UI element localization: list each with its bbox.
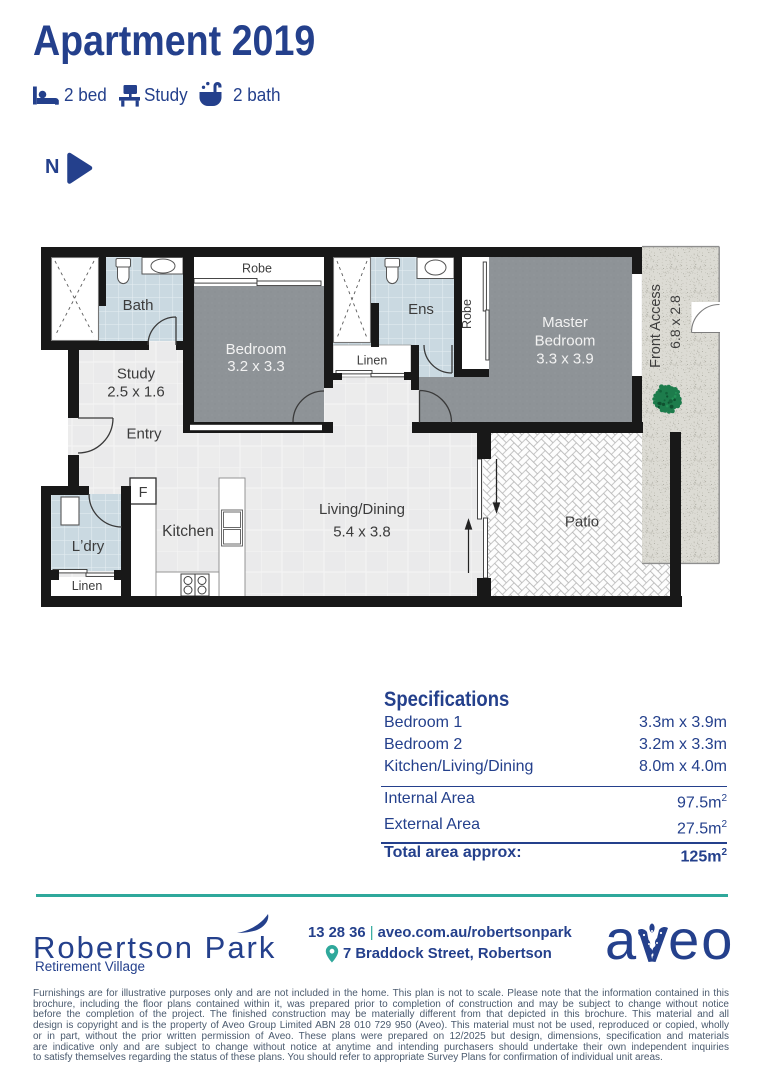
- svg-text:Lʼdry: Lʼdry: [72, 538, 105, 555]
- svg-text:Entry: Entry: [126, 426, 162, 443]
- svg-text:Linen: Linen: [72, 579, 103, 593]
- svg-text:F: F: [139, 485, 148, 501]
- svg-text:Bedroom: Bedroom: [226, 341, 287, 358]
- svg-text:Master: Master: [542, 314, 588, 331]
- svg-text:Linen: Linen: [357, 354, 388, 368]
- svg-text:Robe: Robe: [460, 299, 474, 329]
- svg-text:Study: Study: [117, 366, 156, 383]
- svg-text:6.8 x 2.8: 6.8 x 2.8: [667, 295, 683, 349]
- svg-text:3.2 x 3.3: 3.2 x 3.3: [227, 358, 285, 375]
- svg-text:Ens: Ens: [408, 301, 434, 318]
- svg-text:Bath: Bath: [123, 297, 154, 314]
- svg-text:Patio: Patio: [565, 514, 599, 531]
- svg-text:Living/Dining: Living/Dining: [319, 501, 405, 518]
- svg-text:3.3 x 3.9: 3.3 x 3.9: [536, 351, 594, 368]
- svg-text:Kitchen: Kitchen: [162, 523, 214, 540]
- svg-text:5.4 x 3.8: 5.4 x 3.8: [333, 524, 391, 541]
- svg-text:2.5 x 1.6: 2.5 x 1.6: [107, 384, 165, 401]
- svg-text:Bedroom: Bedroom: [535, 333, 596, 350]
- svg-text:Robe: Robe: [242, 262, 272, 276]
- svg-text:Front Access: Front Access: [648, 284, 664, 368]
